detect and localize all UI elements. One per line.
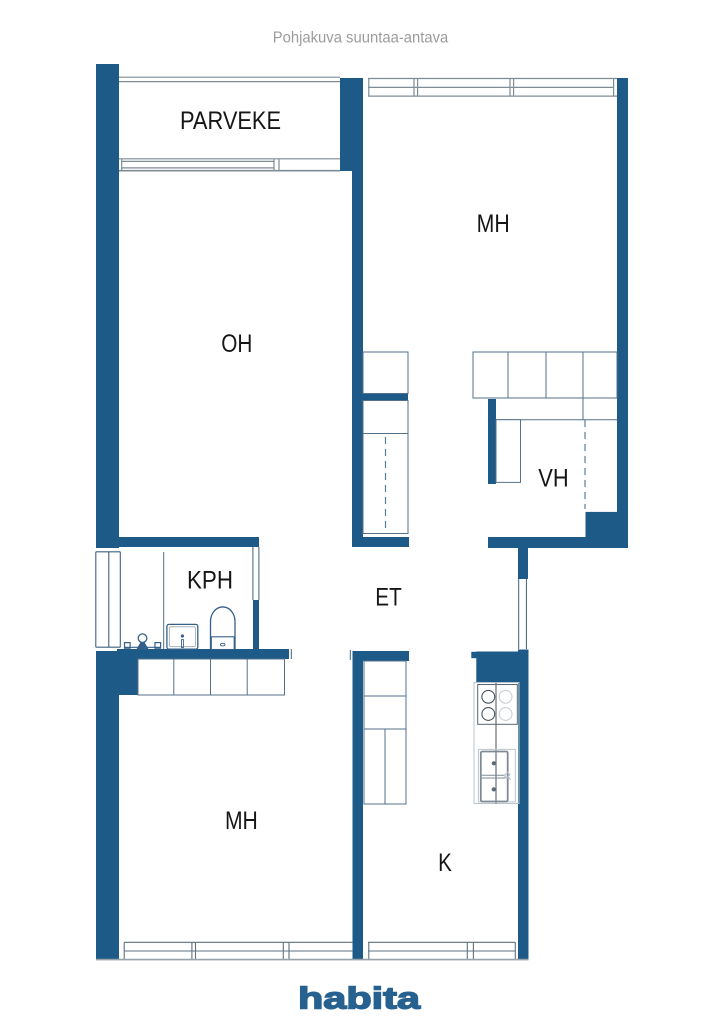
svg-text:Pohjakuva suuntaa-antava: Pohjakuva suuntaa-antava [273,30,449,47]
svg-text:habita: habita [298,981,421,1016]
svg-text:MH: MH [477,210,510,238]
svg-text:ET: ET [375,584,402,612]
svg-text:K: K [438,849,452,877]
svg-text:VH: VH [538,465,568,493]
svg-text:MH: MH [225,807,258,835]
svg-text:PARVEKE: PARVEKE [180,107,281,135]
svg-text:OH: OH [221,330,252,358]
svg-text:KPH: KPH [187,567,233,595]
